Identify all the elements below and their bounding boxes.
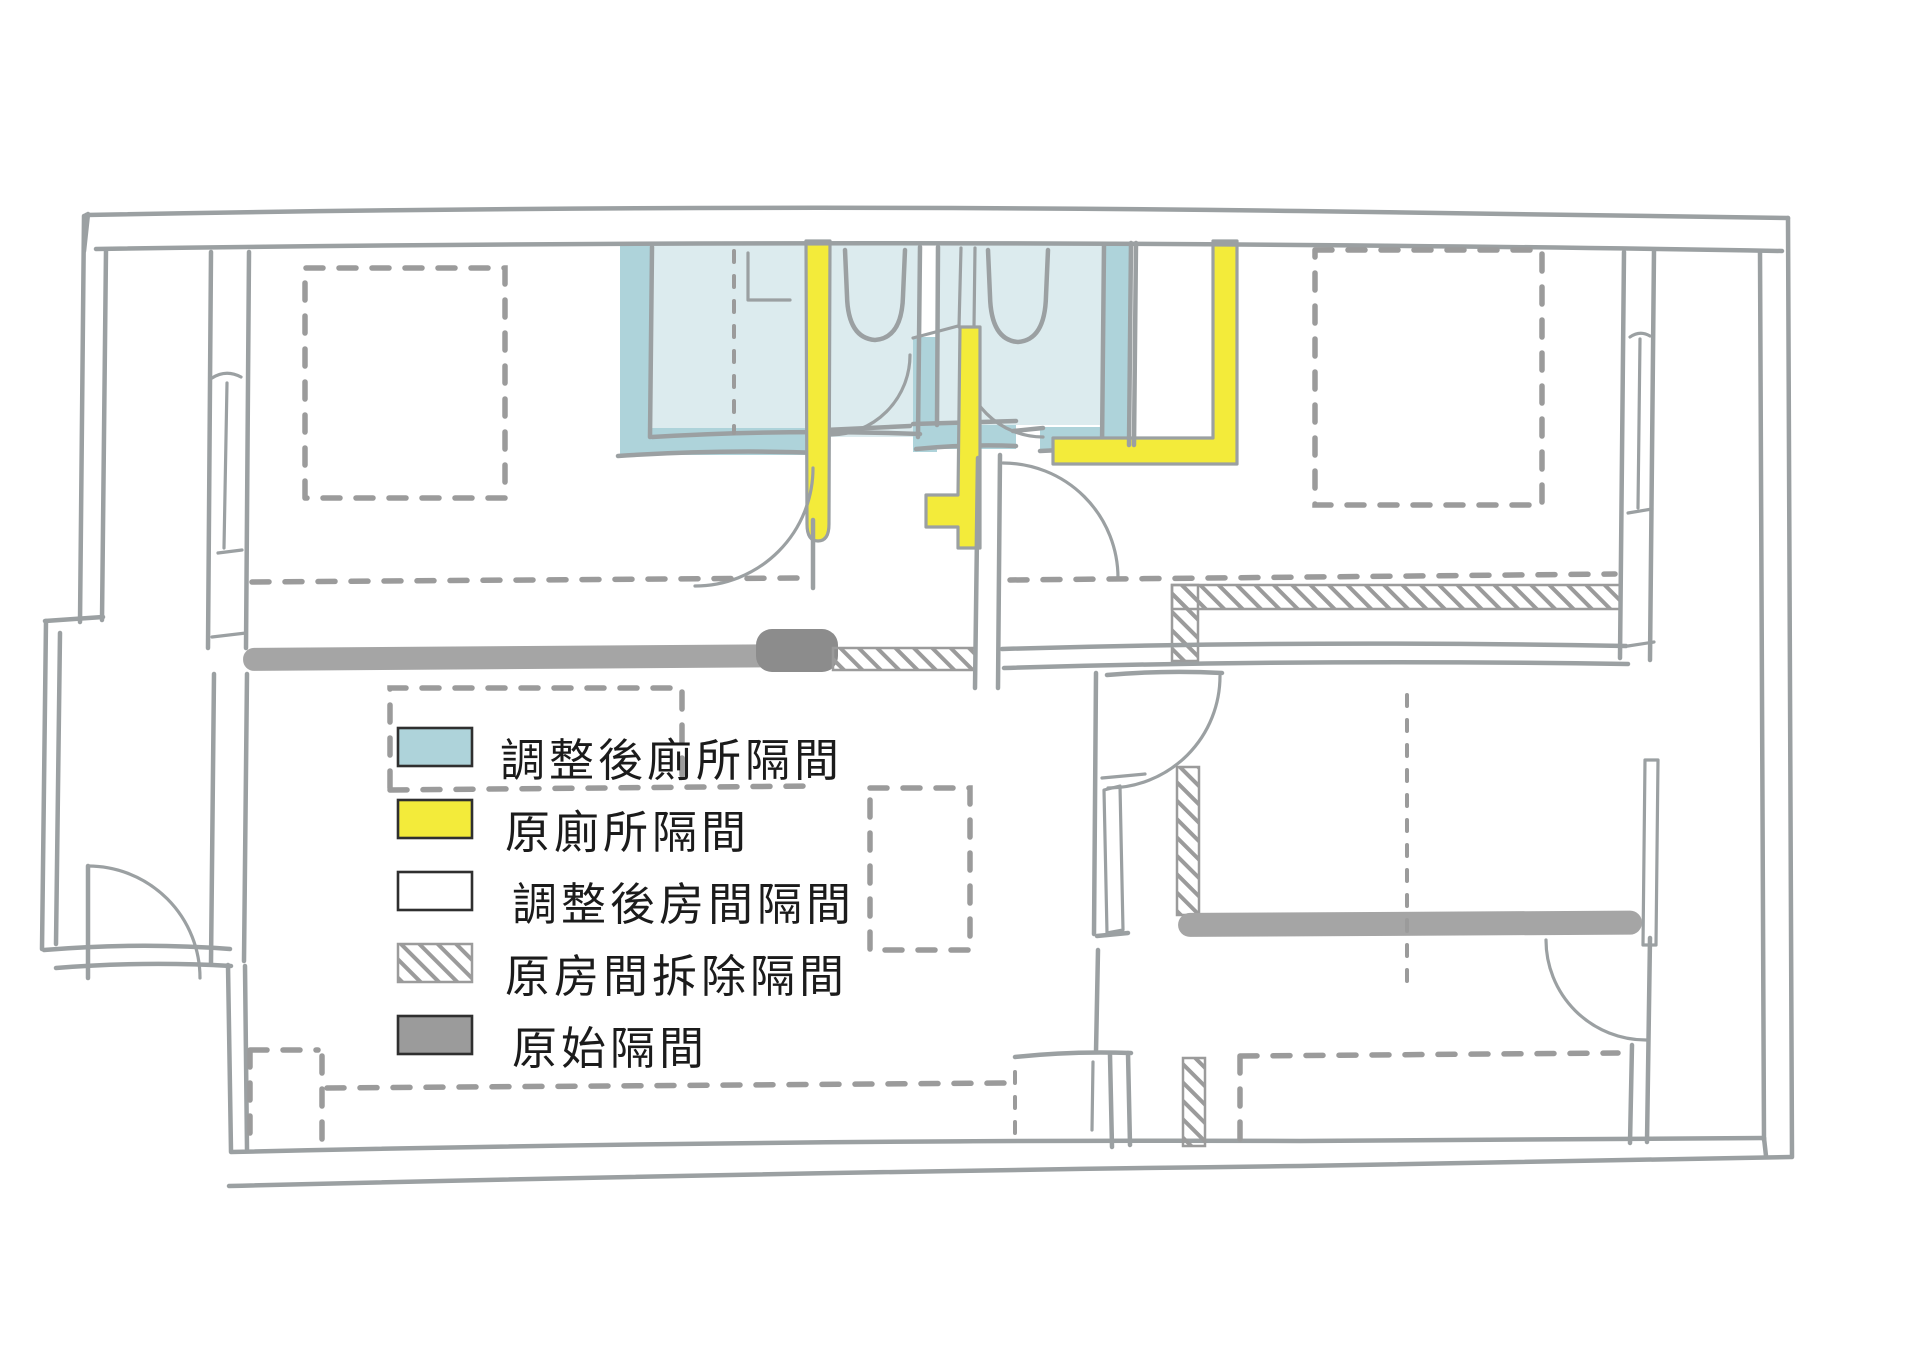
bottom-room bbox=[1015, 950, 1205, 1147]
adjusted-partition-dashed-line bbox=[1010, 574, 1615, 580]
dashed-outline bbox=[250, 1050, 322, 1145]
door-arc bbox=[1003, 463, 1118, 578]
wall-line bbox=[1096, 950, 1098, 1052]
balcony-wall-inner bbox=[56, 633, 60, 944]
legend: 調整後廁所隔間 原廁所隔間 調整後房間隔間 原房間拆除隔間 原始隔間 bbox=[398, 728, 855, 1075]
balcony-bottom-inner bbox=[56, 964, 231, 968]
door-threshold bbox=[1013, 428, 1043, 431]
corner-line bbox=[1764, 1138, 1766, 1156]
legend-label: 原廁所隔間 bbox=[505, 806, 750, 859]
left-wall-inner bbox=[102, 250, 106, 620]
bathroom-wall-line bbox=[1102, 245, 1104, 447]
legend-swatch-toilet-adjusted bbox=[398, 728, 472, 766]
legend-swatch-original bbox=[398, 1016, 472, 1054]
legend-label: 原房間拆除隔間 bbox=[505, 950, 848, 1003]
balcony-door bbox=[88, 866, 200, 978]
balcony-wall-outer bbox=[42, 621, 46, 949]
legend-label: 調整後房間隔間 bbox=[512, 878, 855, 931]
left-lower-wall bbox=[228, 965, 231, 1151]
wall-line bbox=[1092, 1062, 1093, 1130]
demolished-wall-hatch bbox=[1172, 585, 1620, 609]
door-arc bbox=[1108, 676, 1220, 788]
closet-cap bbox=[1628, 509, 1652, 513]
room-wall-line bbox=[1094, 673, 1096, 934]
original-partition-band bbox=[243, 644, 803, 671]
adjusted-partition-dashed-line bbox=[252, 578, 798, 582]
master-room bbox=[1002, 644, 1658, 1143]
bottom-wall-outer bbox=[229, 1157, 1791, 1186]
bedroom-1 bbox=[208, 252, 505, 963]
room-wall-line bbox=[211, 674, 214, 963]
floor-plan-sketch: 調整後廁所隔間 原廁所隔間 調整後房間隔間 原房間拆除隔間 原始隔間 bbox=[0, 0, 1920, 1358]
window-line bbox=[224, 383, 227, 548]
bathroom-wall-line bbox=[918, 247, 920, 437]
legend-label: 原始隔間 bbox=[512, 1022, 708, 1075]
demolished-wall-hatch-bar bbox=[1183, 1058, 1205, 1146]
wall-line bbox=[1110, 1053, 1130, 1147]
bathroom-block bbox=[618, 243, 1129, 456]
right-wall-outer bbox=[1788, 218, 1792, 1157]
room-wall-line bbox=[208, 252, 211, 648]
bathroom-wall-line bbox=[618, 452, 822, 456]
blue-wall-right bbox=[1103, 243, 1129, 446]
floor-plan-page: 調整後廁所隔間 原廁所隔間 調整後房間隔間 原房間拆除隔間 原始隔間 bbox=[0, 0, 1920, 1358]
bottom-wall-inner bbox=[231, 1138, 1764, 1152]
hallway bbox=[243, 455, 1615, 688]
balcony-step-line bbox=[45, 617, 103, 621]
room-wall-line bbox=[1002, 644, 1626, 649]
legend-label: 調整後廁所隔間 bbox=[500, 734, 843, 787]
door-arc bbox=[1546, 940, 1646, 1040]
wall-tick bbox=[212, 633, 246, 637]
room-wall-line bbox=[1004, 662, 1628, 668]
door-arc bbox=[88, 866, 200, 978]
original-partition-dark-segment bbox=[756, 629, 838, 672]
window-cap bbox=[218, 550, 242, 553]
room-wall-line bbox=[244, 674, 247, 961]
dashed-furniture-outline bbox=[1315, 250, 1542, 505]
window-cap bbox=[212, 373, 241, 378]
closet-cap bbox=[1630, 333, 1650, 337]
door-arc bbox=[695, 468, 813, 586]
room-wall-line bbox=[1620, 250, 1654, 660]
original-partition-band bbox=[1178, 911, 1642, 937]
bathroom-wall-line bbox=[650, 247, 652, 437]
left-lower-wall-inner bbox=[245, 966, 247, 1149]
dashed-furniture-outline bbox=[870, 788, 970, 950]
closet-line bbox=[1638, 339, 1640, 508]
room-wall-line bbox=[1129, 243, 1136, 445]
legend-swatch-room-demolished bbox=[398, 944, 472, 982]
wall-line bbox=[1015, 1053, 1131, 1058]
wall-stub bbox=[975, 455, 1000, 688]
right-wall-inner bbox=[1760, 251, 1764, 1140]
left-wall-outer bbox=[80, 216, 84, 622]
dashed-outline bbox=[327, 1083, 1012, 1088]
demolished-wall-hatch-bar bbox=[1177, 767, 1199, 915]
blue-wall-left bbox=[620, 243, 652, 455]
wall-line bbox=[1097, 933, 1128, 936]
demolished-wall-hatch bbox=[833, 648, 975, 670]
legend-swatch-toilet-original bbox=[398, 800, 472, 838]
dashed-outline bbox=[1240, 1053, 1618, 1140]
balcony-bottom-outer bbox=[44, 946, 230, 950]
dashed-furniture-outline bbox=[305, 268, 505, 498]
demolished-wall-hatch-stub bbox=[1172, 585, 1198, 661]
wall-tick bbox=[1102, 774, 1145, 778]
open-door-leaf bbox=[1643, 760, 1658, 945]
room-wall-line bbox=[246, 252, 249, 648]
open-door-leaf bbox=[1104, 786, 1123, 933]
top-wall-outer bbox=[86, 208, 1788, 218]
legend-swatch-room-adjusted bbox=[398, 872, 472, 910]
bathroom-wall-line bbox=[937, 247, 938, 425]
door-leaf bbox=[1107, 672, 1222, 675]
